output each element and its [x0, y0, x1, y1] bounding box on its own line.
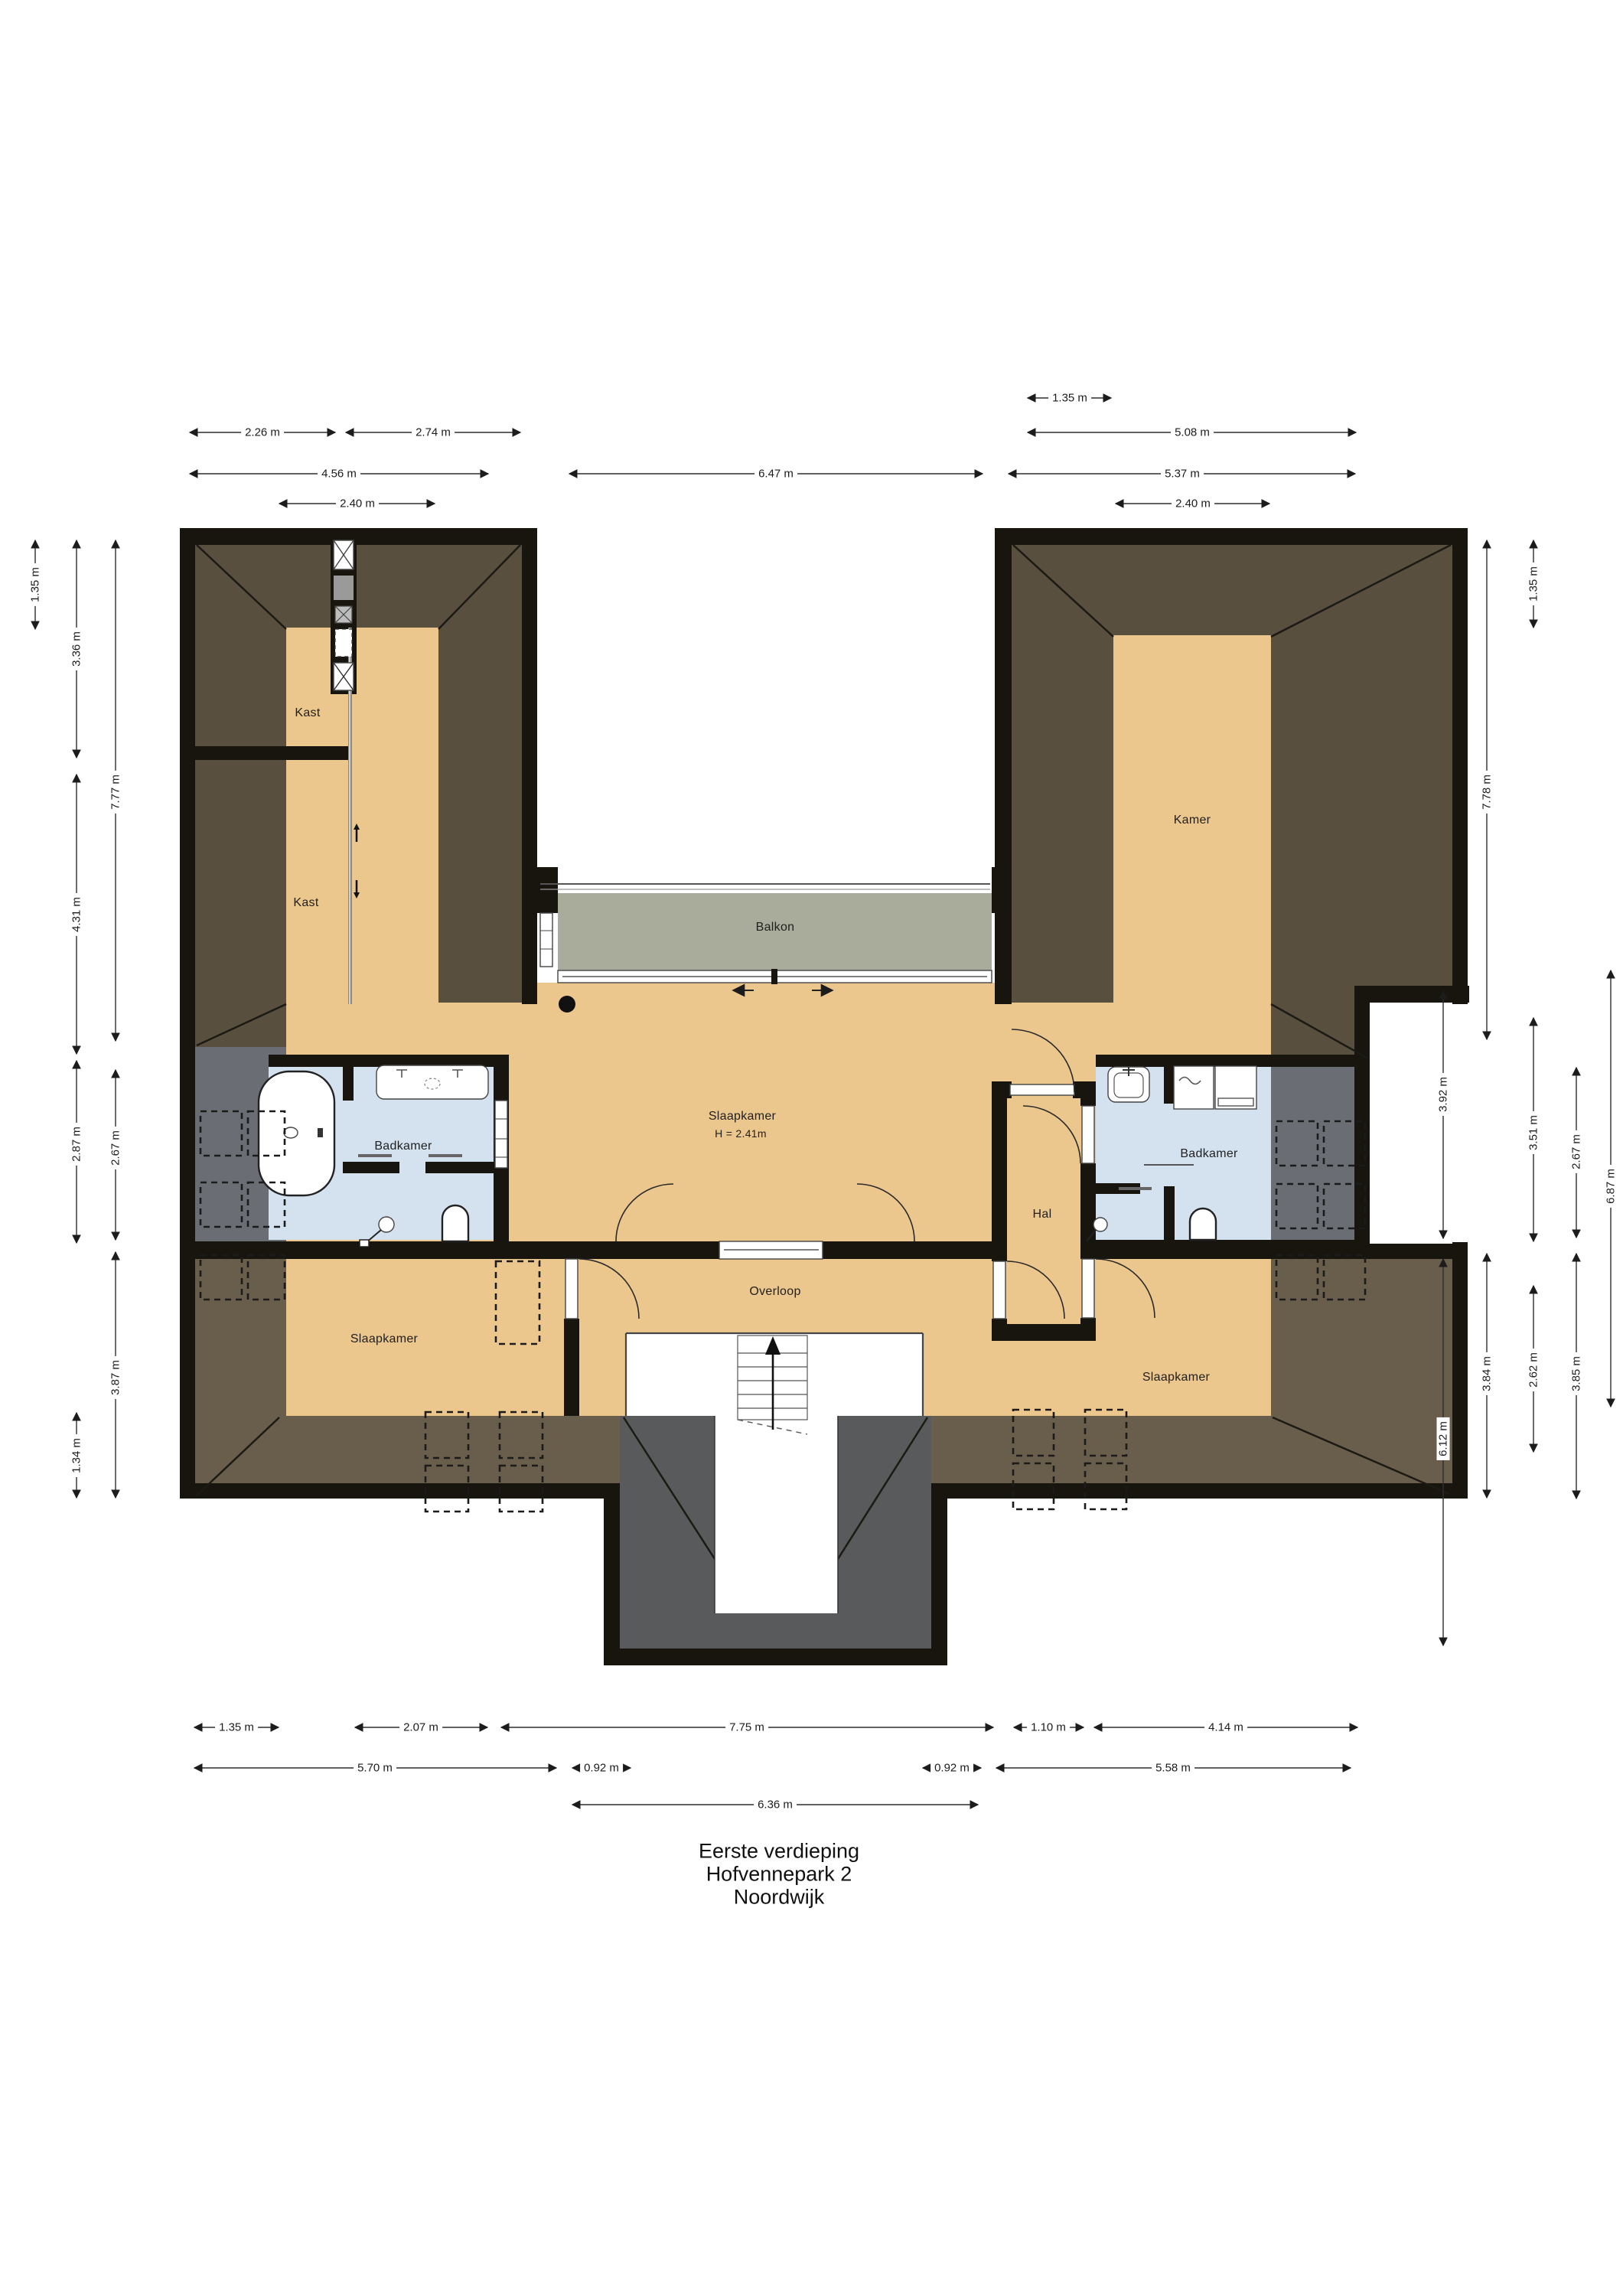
- dim-label: 2.40 m: [336, 497, 379, 510]
- floorplan-page: Kast Kast Kamer Balkon Slaapkamer H = 2.…: [0, 0, 1623, 2296]
- dim-label: 6.87 m: [1605, 1165, 1618, 1208]
- dim-label: 6.12 m: [1437, 1417, 1450, 1460]
- dim-label: 2.87 m: [70, 1123, 83, 1166]
- chimney-icon: [334, 540, 354, 690]
- dim-label: 7.77 m: [109, 771, 122, 814]
- room-label-slaapkamer-center: Slaapkamer: [709, 1110, 776, 1124]
- plan-title-city: Noordwijk: [734, 1886, 825, 1910]
- room-label-slaapkamer-right: Slaapkamer: [1142, 1371, 1210, 1384]
- room-label-badkamer-left: Badkamer: [374, 1140, 432, 1153]
- interior-window: [495, 1101, 507, 1168]
- dim-label: 5.58 m: [1152, 1762, 1194, 1775]
- dim-label: 3.51 m: [1527, 1111, 1540, 1154]
- shower-icon: [1093, 1218, 1107, 1231]
- room-label-hal: Hal: [1033, 1208, 1052, 1221]
- dim-label: 2.26 m: [241, 426, 284, 439]
- dim-label: 2.07 m: [399, 1721, 442, 1734]
- dim-label: 5.08 m: [1171, 426, 1214, 439]
- dim-label: 4.56 m: [318, 468, 360, 481]
- dim-label: 5.70 m: [354, 1762, 396, 1775]
- room-label-ceiling-height: H = 2.41m: [715, 1127, 767, 1140]
- dim-label: 7.78 m: [1481, 771, 1494, 814]
- dim-label: 3.85 m: [1570, 1352, 1583, 1395]
- dim-label: 6.47 m: [754, 468, 797, 481]
- plan-title-floor: Eerste verdieping: [699, 1840, 859, 1864]
- dim-label: 3.36 m: [70, 628, 83, 670]
- dim-label: 3.92 m: [1437, 1073, 1450, 1116]
- dim-label: 2.74 m: [412, 426, 455, 439]
- room-label-kamer: Kamer: [1174, 814, 1211, 827]
- toilet-icon: [442, 1205, 468, 1241]
- dim-label: 3.87 m: [109, 1356, 122, 1399]
- laundry-sink-icon: [1174, 1066, 1214, 1109]
- floorplan-drawing: [0, 0, 1623, 2296]
- room-label-overloop: Overloop: [749, 1285, 800, 1299]
- dim-label: 2.67 m: [1570, 1130, 1583, 1173]
- room-label-kast-mid: Kast: [293, 896, 318, 910]
- room-label-kast-top: Kast: [295, 706, 320, 720]
- washbasin-counter-icon: [376, 1065, 488, 1099]
- dim-label: 1.35 m: [29, 563, 42, 606]
- dim-label: 4.14 m: [1204, 1721, 1247, 1734]
- room-label-badkamer-right: Badkamer: [1180, 1147, 1237, 1161]
- dim-label: 0.92 m: [580, 1762, 623, 1775]
- dim-label: 2.62 m: [1527, 1349, 1540, 1391]
- dim-label: 1.34 m: [70, 1434, 83, 1477]
- balcony-side-window: [540, 913, 552, 967]
- dim-label: 0.92 m: [930, 1762, 973, 1775]
- dim-label: 2.40 m: [1172, 497, 1214, 510]
- room-label-balkon: Balkon: [756, 921, 795, 934]
- dim-label: 6.36 m: [754, 1799, 797, 1812]
- plan-title-address: Hofvennepark 2: [706, 1863, 852, 1887]
- dim-label: 1.35 m: [215, 1721, 258, 1734]
- dim-label: 7.75 m: [725, 1721, 768, 1734]
- toilet-icon: [1190, 1208, 1216, 1240]
- dim-label: 3.84 m: [1481, 1352, 1494, 1395]
- dim-label: 4.31 m: [70, 893, 83, 936]
- dim-label: 1.10 m: [1027, 1721, 1070, 1734]
- column-dot: [559, 996, 575, 1013]
- dim-label: 5.37 m: [1161, 468, 1204, 481]
- room-label-slaapkamer-left: Slaapkamer: [350, 1332, 418, 1346]
- washing-machine-icon: [1215, 1066, 1256, 1109]
- dim-label: 2.67 m: [109, 1127, 122, 1169]
- dim-label: 1.35 m: [1048, 392, 1091, 405]
- dim-label: 1.35 m: [1527, 563, 1540, 605]
